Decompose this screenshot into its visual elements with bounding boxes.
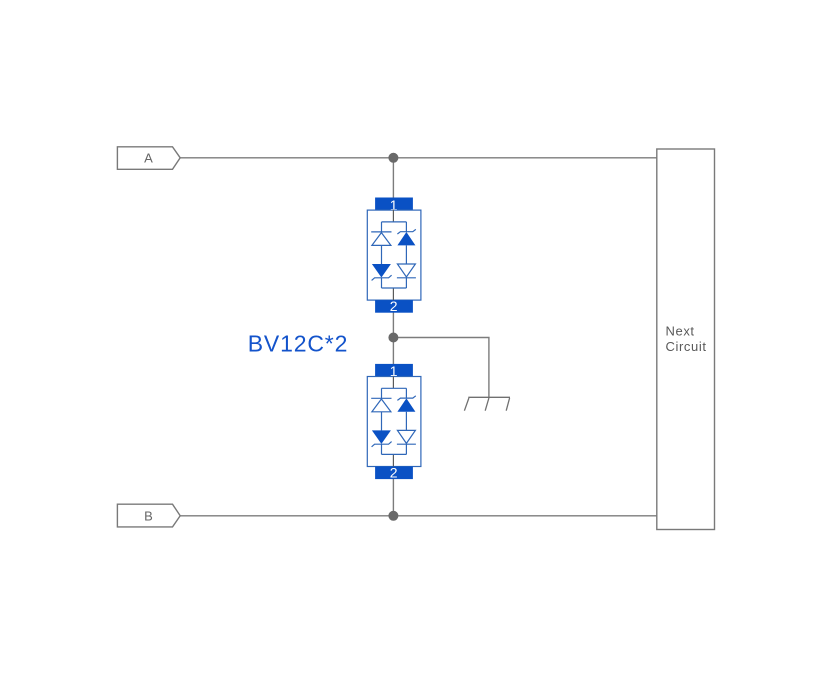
svg-text:A: A [144,151,153,166]
svg-text:B: B [144,509,153,524]
svg-text:2: 2 [390,464,398,480]
svg-text:BV12C*2: BV12C*2 [248,331,349,357]
svg-text:Circuit: Circuit [666,339,707,354]
svg-text:Next: Next [666,324,695,339]
svg-text:2: 2 [390,298,398,314]
